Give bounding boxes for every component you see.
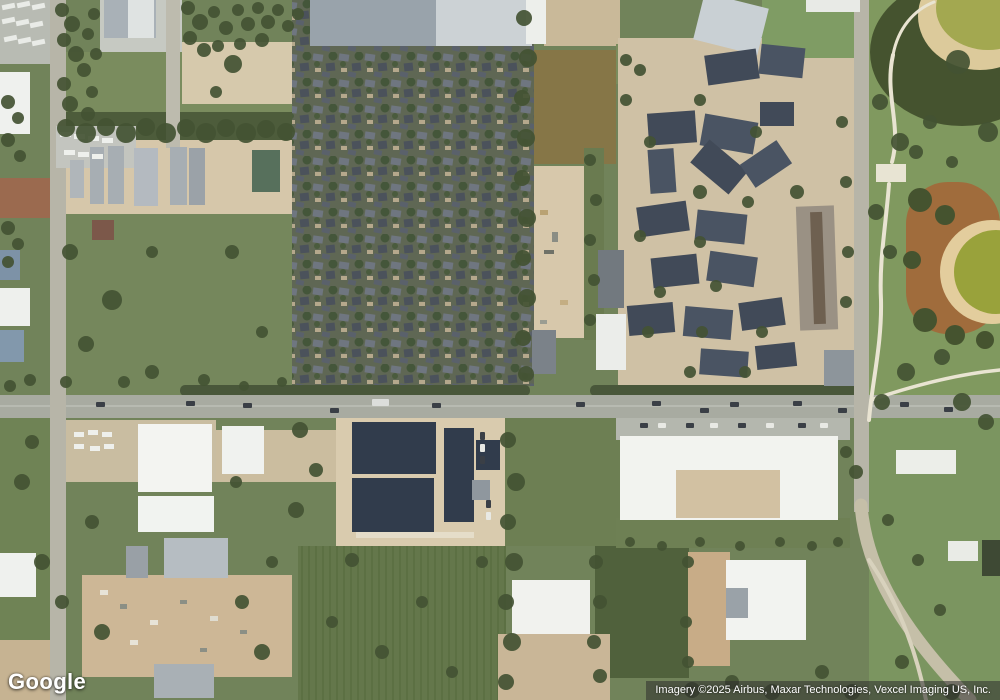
google-logo[interactable]: Google — [8, 669, 86, 695]
attribution-bar: Imagery ©2025 Airbus, Maxar Technologies… — [646, 681, 1000, 700]
map-viewport[interactable]: Google Imagery ©2025 Airbus, Maxar Techn… — [0, 0, 1000, 700]
satellite-imagery — [0, 0, 1000, 700]
attribution-text: Imagery ©2025 Airbus, Maxar Technologies… — [655, 684, 991, 696]
